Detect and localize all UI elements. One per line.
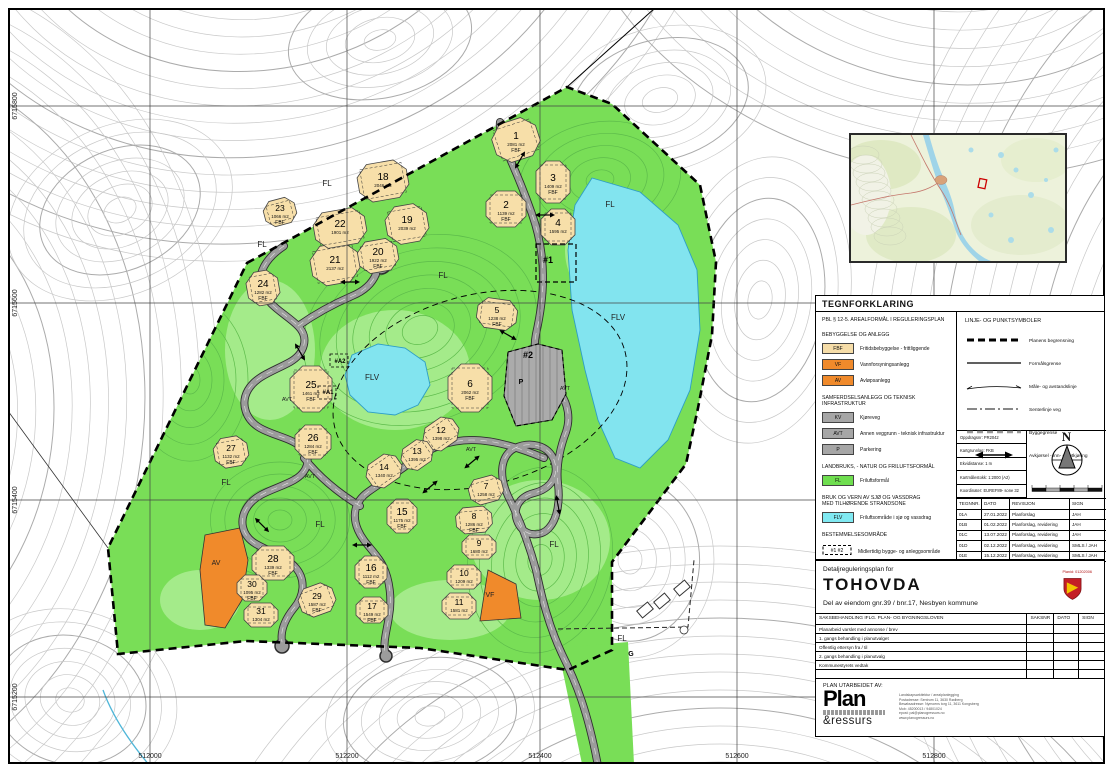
plot-4: 41595 m2	[541, 209, 575, 245]
grid-label-y: 6715400	[12, 486, 19, 513]
line-symbol-formal-grense	[965, 355, 1023, 373]
saks-row-label: Kommunestyrets vedtak	[816, 661, 1027, 669]
map-info-row: Kartgrunnlag: FKB	[957, 444, 1026, 457]
saks-row: Planarbeid varslet med annonse / brev	[816, 625, 1104, 634]
plot-number: 24	[257, 279, 269, 290]
revision-cell: Planforslag, revidering	[1010, 531, 1070, 540]
plot-zone-code: FBF	[465, 396, 474, 402]
legend-item-label: Avløpsanlegg	[860, 378, 890, 384]
revision-cell: JAH	[1070, 510, 1106, 519]
zone-label-FL: FL	[605, 200, 615, 209]
legend-section-heading: BESTEMMELSESOMRÅDE	[822, 532, 954, 538]
plot-area: 1112 m2	[363, 574, 380, 579]
saks-header-row: SAKSBEHANDLING IFLG. PLAN- OG BYGNINGSLO…	[816, 614, 1104, 625]
north-arrow-box: N	[1026, 431, 1106, 498]
revision-table: TEGNNR.DATOREVISJONSIGN01A27.01.2022Plan…	[956, 498, 1106, 561]
plot-number: 7	[484, 481, 489, 491]
legend-item: VFVannforsyningsanlegg	[822, 359, 954, 370]
legend-item-label: Kjøreveg	[860, 415, 880, 421]
legend-item: FLVFriluftsområde i sjø og vassdrag	[822, 512, 954, 523]
plan-id: Planid: 01202006	[1062, 570, 1092, 574]
saks-header: SAKSBEHANDLING IFLG. PLAN- OG BYGNINGSLO…	[816, 614, 1027, 624]
line-symbol-label: Formålsgrense	[1029, 362, 1061, 367]
saks-row-dato	[1054, 625, 1079, 633]
revision-header-cell: TEGNNR.	[957, 499, 982, 509]
plot-number: 8	[472, 511, 477, 521]
line-symbol-measure-line	[965, 378, 1023, 396]
zone-label-FL: FL	[322, 179, 332, 188]
saks-row-dato	[1054, 670, 1079, 678]
plot-zone-code: FBF	[397, 524, 406, 530]
grid-label-x: 512600	[725, 753, 748, 760]
plot-25: 251461 m2FBF	[290, 366, 332, 412]
plot-area: 1066 m2	[271, 214, 289, 219]
zone-label-FL: FL	[257, 240, 267, 249]
line-symbol-label: Måle- og avstandslinje	[1029, 385, 1077, 390]
saks-row: 1. gangs behandling i planutvalget	[816, 634, 1104, 643]
plot-15: 151175 m2FBF	[387, 499, 417, 533]
saks-row-label	[816, 670, 1027, 678]
plot-zone-code: FBF	[469, 528, 478, 534]
line-symbol-label: Senterlinje veg	[1029, 408, 1061, 413]
plot-10: 101209 m2	[447, 565, 481, 589]
logo-text-plan: Plan	[823, 689, 885, 709]
revision-row: 01D02.12.2022Planforslag, revideringSMLS…	[957, 541, 1106, 551]
legend-section-heading: BRUK OG VERN AV SJØ OG VASSDRAG MED TILH…	[822, 495, 954, 507]
plot-number: 21	[329, 255, 341, 266]
legend-swatch-P: P	[822, 444, 854, 455]
plot-number: 20	[372, 247, 384, 258]
plot-number: 31	[256, 606, 266, 616]
plot-area: 2081 m2	[507, 142, 525, 147]
legend-item: AVTAnnen veggrunn - teknisk infrastruktu…	[822, 428, 954, 439]
svg-text:#1 #2: #1 #2	[831, 548, 844, 554]
line-symbols-title: LINJE- OG PUNKTSYMBOLER	[965, 318, 1106, 324]
legend-item-label: Parkering	[860, 447, 881, 453]
plot-area: 1175 m2	[393, 518, 411, 523]
revision-header-cell: DATO	[982, 499, 1010, 509]
saks-row-empty	[816, 670, 1104, 679]
north-arrow-icon	[1028, 442, 1106, 478]
plot-area: 1409 m2	[544, 184, 562, 189]
plot-area: 1922 m2	[369, 258, 387, 263]
saks-row-sign	[1079, 634, 1104, 642]
north-letter: N	[1027, 431, 1106, 442]
plot-number: 23	[275, 203, 285, 213]
plot-area: 1398 m2	[432, 436, 450, 441]
marker-label: P	[519, 379, 524, 386]
plot-area: 1284 m2	[304, 444, 322, 449]
legend-section-heading: BEBYGGELSE OG ANLEGG	[822, 332, 954, 338]
saks-row-saksnr	[1027, 652, 1054, 660]
revision-cell: 27.01.2022	[982, 510, 1010, 519]
legend-pbl-heading: PBL § 12-5. AREALFORMÅL I REGULERINGSPLA…	[822, 317, 954, 323]
marker-label: #1	[543, 255, 553, 265]
plot-number: 15	[396, 507, 408, 518]
zone-label-FL: FL	[549, 540, 559, 549]
revision-header-row: TEGNNR.DATOREVISJONSIGN	[957, 499, 1106, 510]
plot-zone-code: FBF	[247, 596, 256, 602]
plot-zone-code: FBF	[312, 608, 321, 614]
plot-number: 13	[412, 446, 422, 456]
plot-number: 12	[436, 425, 446, 435]
saks-row-label: 2. gangs behandling i planutvalg	[816, 652, 1027, 660]
revision-cell: JAH	[1070, 531, 1106, 540]
legend-swatch-AVT: AVT	[822, 428, 854, 439]
saks-row-saksnr	[1027, 634, 1054, 642]
legend-item: KVKjøreveg	[822, 412, 954, 423]
zone-label-FLV: FLV	[365, 373, 380, 382]
revision-cell: Planforslag, revidering	[1010, 520, 1070, 529]
plot-number: 5	[495, 305, 500, 315]
revision-row: 01C13.07.2022Planforslag, revideringJAH	[957, 531, 1106, 541]
map-info-row: Koordinater: EUREF89- sone 32	[957, 485, 1026, 498]
revision-cell: 01.02.2022	[982, 520, 1010, 529]
plot-area: 1549 m2	[363, 612, 381, 617]
revision-cell: 01C	[957, 531, 982, 540]
saks-row-saksnr	[1027, 670, 1054, 678]
plot-number: 6	[467, 379, 473, 390]
grid-label-x: 512200	[335, 753, 358, 760]
line-symbol-item: Senterlinje veg	[965, 401, 1106, 419]
plan-type-label: Detaljreguleringsplan for	[823, 566, 893, 573]
legend-panel: TEGNFORKLARING PBL § 12-5. AREALFORMÅL I…	[815, 295, 1105, 560]
plot-number: 3	[550, 173, 556, 184]
saks-row-sign	[1079, 661, 1104, 669]
legend-item-label: Vannforsyningsanlegg	[860, 362, 909, 368]
map-info-row: Kartmålestokk: 1:2000 (A2)	[957, 471, 1026, 484]
zone-label-FL: FL	[438, 271, 448, 280]
plot-16: 161112 m2FBF	[355, 556, 387, 588]
plot-area: 1581 m2	[450, 608, 468, 613]
plot-zone-code: FBF	[367, 618, 376, 624]
plot-area: 1461 m2	[302, 391, 320, 396]
producer-logo-row: Plan &ressurs Landskapsarkitektur / area…	[823, 689, 979, 727]
logo-text-ressurs: &ressurs	[823, 716, 885, 727]
zone-label-FL: FL	[221, 478, 231, 487]
plot-zone-code: FBF	[258, 296, 267, 302]
plot-number: 28	[267, 554, 279, 565]
title-block: Detaljreguleringsplan for TOHOVDA Del av…	[815, 560, 1105, 737]
saks-row: Kommunestyrets vedtak	[816, 661, 1104, 670]
legend-swatch-FLV: FLV	[822, 512, 854, 523]
plot-number: 14	[379, 462, 389, 472]
legend-item: AVAvløpsanlegg	[822, 375, 954, 386]
legend-swatch-VF: VF	[822, 359, 854, 370]
revision-row: 01B01.02.2022Planforslag, revideringJAH	[957, 520, 1106, 530]
saksnr-col: SAKSNR	[1027, 614, 1054, 624]
grid-label-y: 6715800	[12, 92, 19, 119]
plot-zone-code: FBF	[366, 580, 375, 586]
saks-row-label: Offentlig ettersyn fra / til	[816, 643, 1027, 651]
plan-ressurs-logo: Plan &ressurs	[823, 689, 885, 727]
plot-number: 18	[377, 172, 389, 183]
saks-row-sign	[1079, 625, 1104, 633]
plot-area: 1139 m2	[497, 211, 515, 216]
saks-row-dato	[1054, 661, 1079, 669]
plot-area: 1595 m2	[549, 229, 567, 234]
line-symbol-center-line	[965, 401, 1023, 419]
plot-area: 1095 m2	[243, 590, 261, 595]
revision-cell: 01B	[957, 520, 982, 529]
plot-zone-code: FBF	[308, 450, 317, 456]
legend-item: FLFriluftsformål	[822, 475, 954, 486]
saks-row-sign	[1079, 643, 1104, 651]
legend-swatch-KV: KV	[822, 412, 854, 423]
legend-section-heading: LANDBRUKS, - NATUR OG FRILUFTSFORMÅL	[822, 464, 954, 470]
plot-number: 2	[503, 200, 509, 211]
legend-item-label: Midlertidig bygge- og anleggsområde	[858, 549, 940, 555]
plot-area: 1395 m2	[408, 457, 426, 462]
revision-cell: JAH	[1070, 520, 1106, 529]
revision-cell: Planforslag	[1010, 510, 1070, 519]
scale-bar	[1029, 484, 1105, 496]
plot-area: 1132 m2	[222, 454, 240, 459]
plot-area: 1340 m2	[375, 473, 393, 478]
plot-17: 171549 m2FBF	[356, 597, 388, 624]
plot-area: 2039 m2	[398, 226, 416, 231]
saks-row: 2. gangs behandling i planutvalg	[816, 652, 1104, 661]
saks-row-saksnr	[1027, 661, 1054, 669]
plot-zone-code: FBF	[511, 148, 520, 154]
marker-label: #A2	[334, 359, 346, 365]
revision-cell: 02.12.2022	[982, 541, 1010, 550]
bestemmelse-symbol: #1 #2	[822, 543, 852, 561]
contact-line: www.planogressurs.no	[899, 716, 979, 721]
zone-label-FL: FL	[315, 520, 325, 529]
grid-label-x: 512400	[528, 753, 551, 760]
plot-area: 1339 m2	[264, 565, 282, 570]
plot-number: 26	[307, 433, 319, 444]
legend-line-symbols: LINJE- OG PUNKTSYMBOLER Planens begrensn…	[956, 312, 1106, 431]
plot-number: 9	[477, 538, 482, 548]
plot-number: 17	[367, 601, 377, 611]
plot-zone-code: FBF	[501, 217, 510, 223]
map-info-row: Ekvidistanse: 1 m	[957, 458, 1026, 471]
producer-contact: Landskapsarkitektur / arealplanleggingPo…	[899, 689, 979, 721]
inset-map	[849, 133, 1067, 263]
plot-area: 2062 m2	[461, 390, 479, 395]
plot-number: 22	[334, 219, 346, 230]
revision-cell: 01A	[957, 510, 982, 519]
grid-label-y: 6715600	[12, 289, 19, 316]
plot-number: 16	[365, 563, 377, 574]
saks-row-sign	[1079, 670, 1104, 678]
revision-row: 01A27.01.2022PlanforslagJAH	[957, 510, 1106, 520]
line-symbol-plan-boundary	[965, 332, 1023, 350]
title-block-top: Detaljreguleringsplan for TOHOVDA Del av…	[816, 561, 1104, 614]
marker-label: #A1	[322, 390, 334, 396]
zone-label-FLV: FLV	[611, 313, 626, 322]
legend-item-label: Friluftsområde i sjø og vassdrag	[860, 515, 931, 521]
grid-label-x: 512800	[922, 753, 945, 760]
plot-number: 4	[555, 218, 561, 229]
inset-map-graphic	[851, 135, 1065, 261]
marker-label: #2	[523, 350, 533, 360]
line-symbol-item: Formålsgrense	[965, 355, 1106, 373]
legend-item-label: Annen veggrunn - teknisk infrastruktur	[860, 431, 945, 437]
plot-zone-code: FBF	[275, 220, 284, 226]
plot-area: 1587 m2	[308, 602, 326, 607]
plot-11: 111581 m2	[442, 593, 476, 619]
plot-number: 30	[247, 579, 257, 589]
plot-number: 10	[459, 568, 469, 578]
plot-number: 25	[305, 380, 317, 391]
marker-label: G	[628, 651, 634, 658]
legend-title: TEGNFORKLARING	[816, 296, 1104, 312]
plot-area: 1209 m2	[455, 579, 473, 584]
grid-label-x: 512000	[138, 753, 161, 760]
plot-area: 1238 m2	[488, 316, 506, 321]
plot-30: 301095 m2FBF	[237, 575, 267, 602]
saks-row-sign	[1079, 652, 1104, 660]
plot-number: 1	[513, 131, 519, 142]
legend-item-bestemmelse: #1 #2Midlertidig bygge- og anleggsområde	[822, 543, 954, 561]
saks-row-saksnr	[1027, 643, 1054, 651]
legend-swatch-FBF: FBF	[822, 343, 854, 354]
revision-cell: SMLS / JAH	[1070, 541, 1106, 550]
legend-section-heading: SAMFERDSELSANLEGG OG TEKNISK INFRASTRUKT…	[822, 395, 954, 407]
plot-3: 31409 m2FBF	[536, 161, 570, 203]
revision-cell: Planforslag, revidering	[1010, 541, 1070, 550]
legend-item: FBFFritidsbebyggelse - frittliggende	[822, 343, 954, 354]
plot-area: 1304 m2	[252, 617, 270, 622]
zone-label-VF: VF	[486, 592, 495, 599]
plot-zone-code: FBF	[373, 264, 382, 270]
sign-col: SIGN	[1079, 614, 1104, 624]
dato-col: DATO	[1054, 614, 1079, 624]
plot-zone-code: FBF	[226, 460, 235, 466]
map-info-box: Oppdragsnr: PR2042Kartgrunnlag: FKBEkvid…	[956, 431, 1026, 498]
saks-row-saksnr	[1027, 625, 1054, 633]
revision-header-cell: SIGN	[1070, 499, 1106, 509]
plot-number: 29	[312, 591, 322, 601]
grid-label-y: 6715200	[12, 683, 19, 710]
zone-label-AV: AV	[212, 560, 221, 567]
plot-9: 91680 m2	[462, 535, 496, 559]
saks-row: Offentlig ettersyn fra / til	[816, 643, 1104, 652]
zone-label-AVT: AVT	[282, 397, 293, 403]
plot-zone-code: FBF	[548, 190, 557, 196]
line-symbol-item: Planens begrensning	[965, 332, 1106, 350]
saks-row-dato	[1054, 652, 1079, 660]
plot-2: 21139 m2FBF	[486, 191, 526, 227]
revision-header-cell: REVISJON	[1010, 499, 1070, 509]
zone-label-AVT: AVT	[560, 386, 571, 392]
plot-zone-code: FBF	[492, 322, 501, 328]
legend-area-symbols: PBL § 12-5. AREALFORMÅL I REGULERINGSPLA…	[816, 312, 956, 560]
saks-row-label: Planarbeid varslet med annonse / brev	[816, 625, 1027, 633]
revision-cell: 01D	[957, 541, 982, 550]
plot-26: 261284 m2FBF	[295, 425, 331, 459]
plan-subtitle: Del av eiendom gnr.39 / bnr.17, Nesbyen …	[823, 600, 978, 607]
legend-swatch-FL: FL	[822, 475, 854, 486]
plot-number: 19	[401, 215, 413, 226]
legend-item-label: Friluftsformål	[860, 478, 889, 484]
plot-zone-code: FBF	[306, 397, 315, 403]
plot-area: 1901 m2	[331, 230, 349, 235]
saks-row-dato	[1054, 643, 1079, 651]
plot-area: 1286 m2	[465, 522, 483, 527]
legend-item-label: Fritidsbebyggelse - frittliggende	[860, 346, 929, 352]
plot-area: 1282 m2	[254, 290, 272, 295]
zone-label-AVT: AVT	[305, 474, 316, 480]
plot-area: 2137 m2	[326, 266, 344, 271]
plan-title: TOHOVDA	[823, 575, 922, 595]
plot-6: 62062 m2FBF	[448, 364, 492, 412]
line-symbol-item: Måle- og avstandslinje	[965, 378, 1106, 396]
plan-sheet: 12081 m2FBF21139 m2FBF31409 m2FBF41595 m…	[0, 0, 1113, 772]
zone-label-AVT: AVT	[466, 447, 477, 453]
legend-swatch-AV: AV	[822, 375, 854, 386]
revision-cell: 13.07.2022	[982, 531, 1010, 540]
zone-label-FL: FL	[617, 634, 627, 643]
saks-row-dato	[1054, 634, 1079, 642]
plot-area: 1258 m2	[477, 492, 495, 497]
map-info-row: Oppdragsnr: PR2042	[957, 431, 1026, 444]
plot-area: 1680 m2	[470, 549, 488, 554]
line-symbol-label: Planens begrensning	[1029, 339, 1074, 344]
plot-31: 311304 m2	[244, 603, 278, 627]
municipality-coat-of-arms	[1063, 577, 1082, 601]
plot-number: 11	[455, 597, 464, 607]
plot-zone-code: FBF	[268, 571, 277, 577]
plot-number: 27	[226, 443, 236, 453]
saks-row-label: 1. gangs behandling i planutvalget	[816, 634, 1027, 642]
legend-item: PParkering	[822, 444, 954, 455]
